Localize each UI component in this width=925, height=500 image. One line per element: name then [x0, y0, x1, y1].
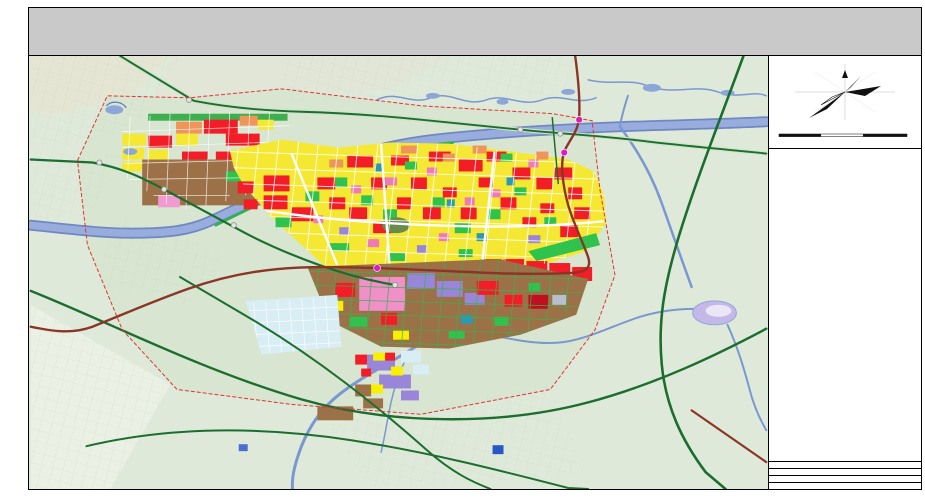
- authority-name: [769, 475, 921, 482]
- compass-box: [769, 56, 921, 149]
- sheet-number: [769, 468, 921, 475]
- map-name: [895, 50, 921, 55]
- land-use-map: [29, 56, 768, 489]
- reservoir: [493, 445, 504, 454]
- legend-panel: [768, 56, 921, 489]
- map-canvas: [29, 56, 768, 489]
- sheet-frame: [28, 7, 922, 490]
- compass-scale: [769, 56, 921, 146]
- north-arrow: [795, 64, 895, 120]
- plan-sheet: [0, 0, 925, 500]
- sheet-header: [29, 8, 921, 56]
- sheet-body: [29, 56, 921, 489]
- title-block: [769, 461, 921, 489]
- institute-name: [769, 482, 921, 489]
- scale-bar: [779, 134, 907, 137]
- page-title: [45, 16, 49, 47]
- legend-section-lines: [769, 171, 921, 175]
